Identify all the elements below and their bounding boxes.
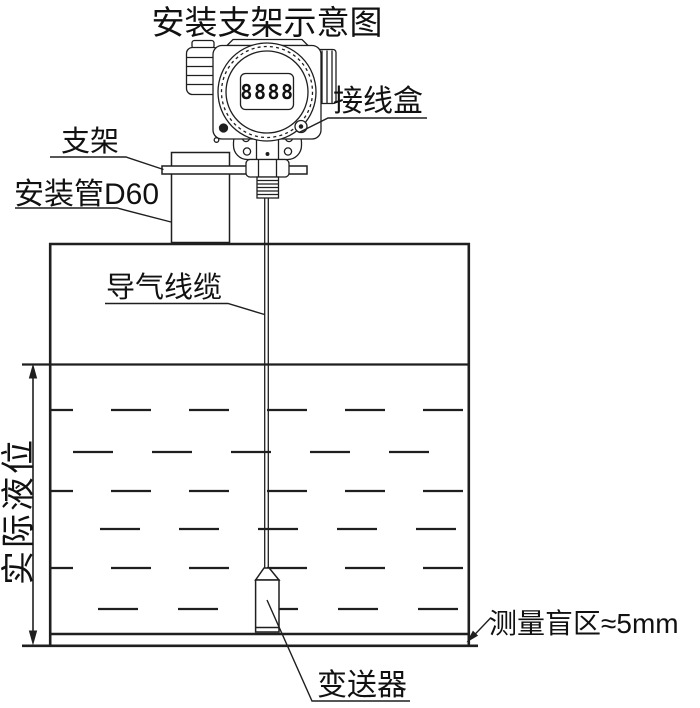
lcd-reading: 8888 xyxy=(240,80,294,104)
bolt-icon xyxy=(214,138,219,143)
label-mounting-pipe: 安装管D60 xyxy=(14,178,159,211)
label-actual-level: 实际液位 xyxy=(0,437,38,585)
label-bracket: 支架 xyxy=(61,125,119,158)
label-air-cable: 导气线缆 xyxy=(106,271,222,304)
diagram-canvas: 8888 xyxy=(0,0,700,708)
label-blind-zone: 测量盲区≈5mm xyxy=(489,608,679,639)
air-cable-leader xyxy=(105,304,265,315)
threaded-nipple xyxy=(257,177,279,198)
air-cable-lines xyxy=(265,198,269,571)
bolt-icon xyxy=(220,124,228,132)
arrow-up-icon xyxy=(29,364,37,379)
page-title: 安装支架示意图 xyxy=(152,4,383,41)
bracket-leader xyxy=(50,157,164,170)
label-transmitter: 变送器 xyxy=(317,669,407,702)
installation-diagram: 8888 xyxy=(0,0,700,708)
label-junction-box: 接线盒 xyxy=(333,85,423,118)
hex-nut xyxy=(246,160,289,178)
probe-taper xyxy=(256,568,279,580)
tank xyxy=(22,243,478,646)
probe-body xyxy=(256,580,279,632)
bolt-dot xyxy=(299,125,302,128)
arrow-down-icon xyxy=(29,631,37,646)
